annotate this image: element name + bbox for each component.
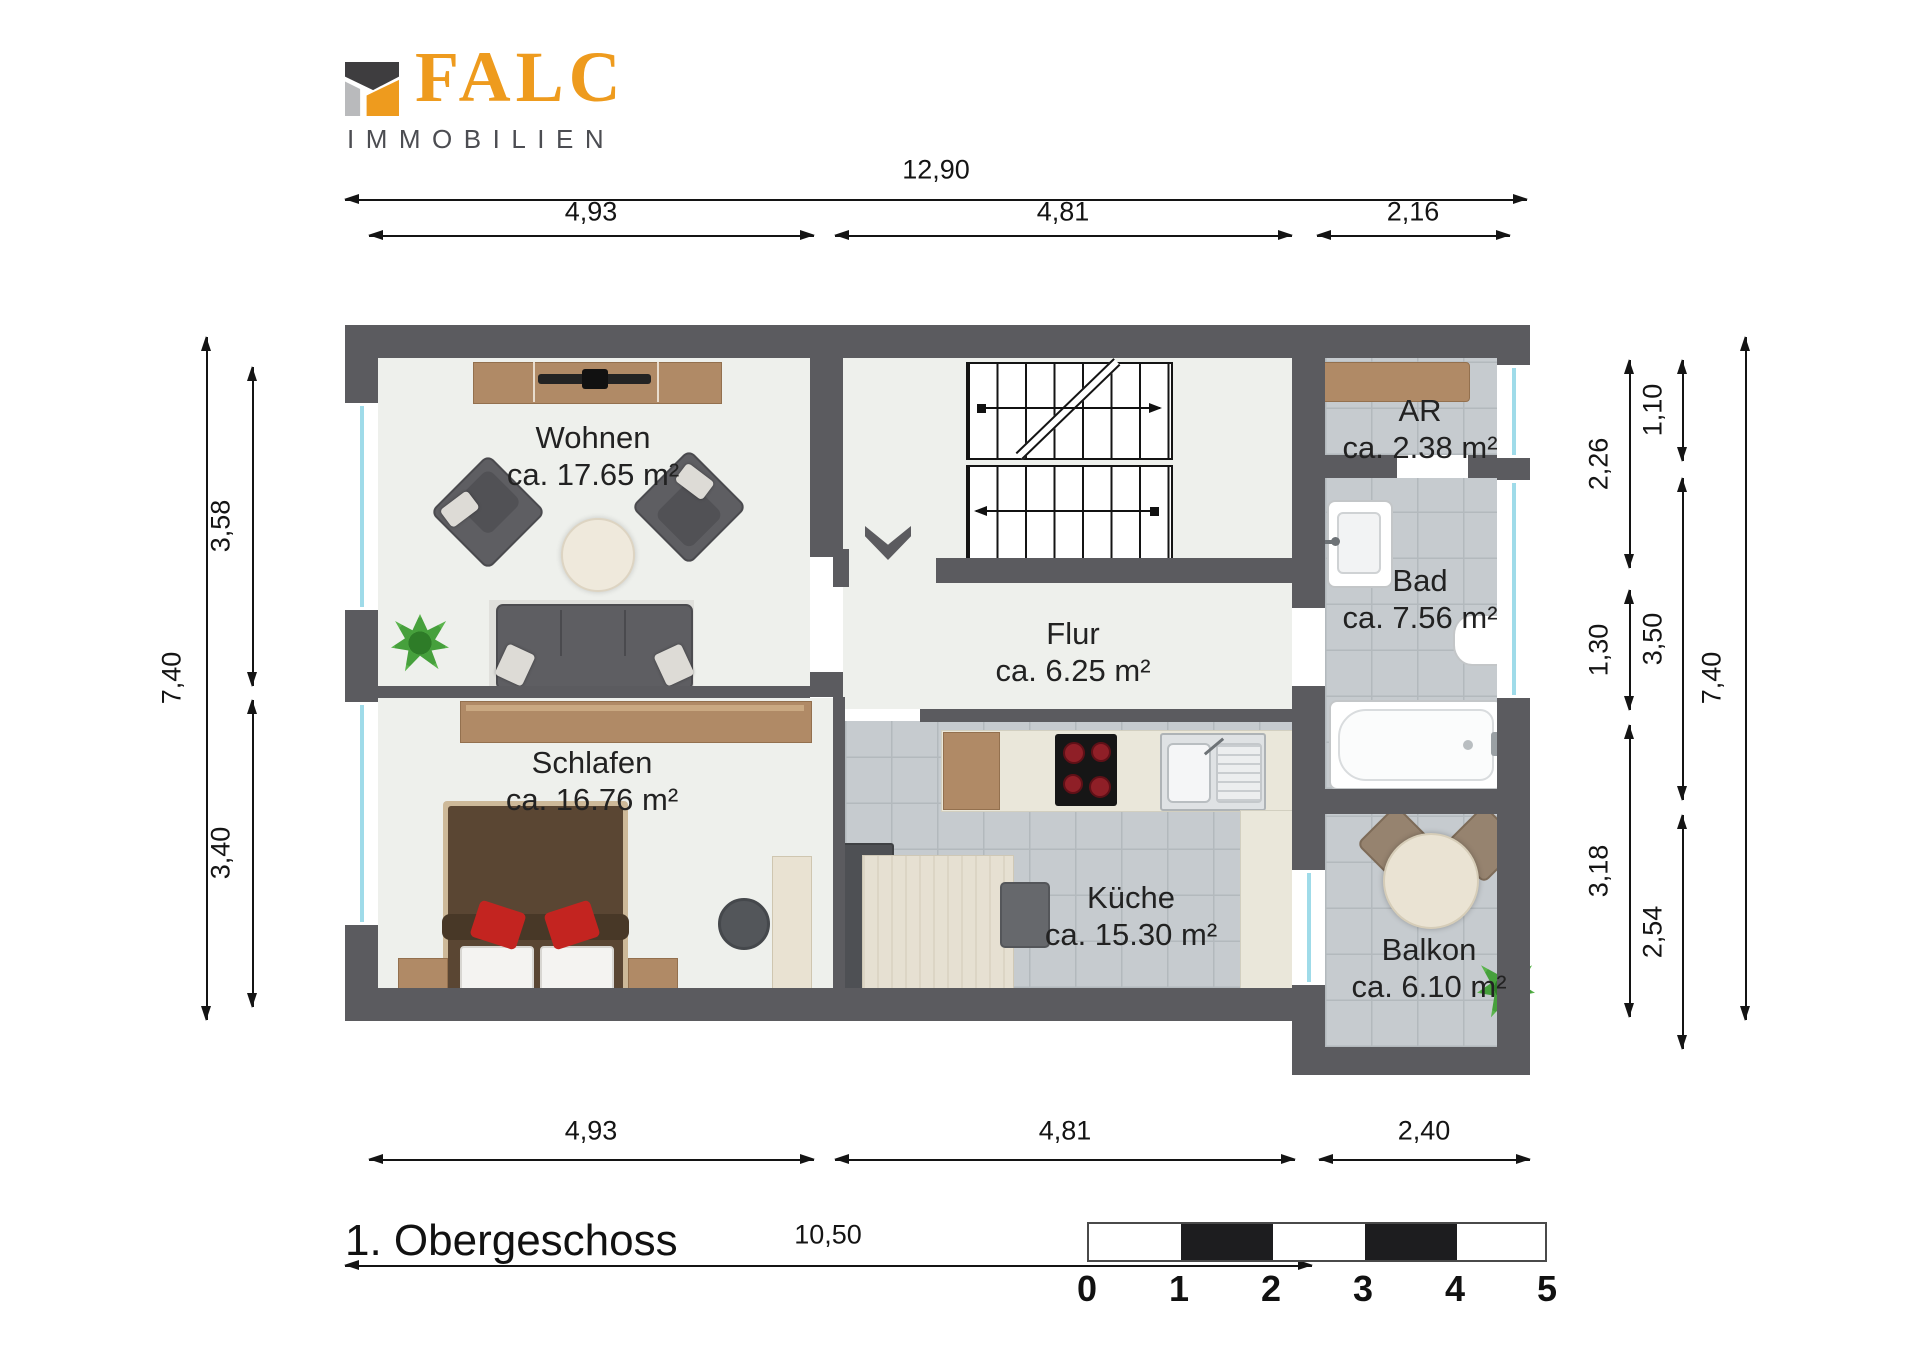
burner — [1089, 776, 1111, 798]
window-wohnen — [345, 403, 378, 610]
room-area: ca. 6.10 m² — [1351, 968, 1506, 1005]
dim-arrow — [252, 367, 254, 686]
sofa-seam — [624, 610, 626, 656]
bed-cushion-red — [469, 900, 526, 951]
wall-outer-right — [1497, 458, 1530, 480]
room-area: ca. 7.56 m² — [1342, 599, 1497, 636]
dim-arrow — [1317, 235, 1510, 237]
dim-arrow — [1319, 1159, 1530, 1161]
brand-logo-icon — [345, 62, 399, 116]
brand-name: FALC — [415, 36, 626, 119]
dim-arrow — [1682, 360, 1684, 461]
wall-door-stub — [833, 549, 849, 587]
room-area: ca. 16.76 m² — [506, 781, 678, 818]
sofa-seam — [560, 610, 562, 656]
dim-label: 2,26 — [1584, 438, 1615, 491]
room-label-schlafen: Schlafen ca. 16.76 m² — [506, 744, 678, 818]
floor-title: 1. Obergeschoss — [345, 1216, 678, 1266]
wall-hall-bad — [1292, 686, 1325, 806]
scale-tick: 3 — [1353, 1268, 1373, 1310]
scale-tick: 2 — [1261, 1268, 1281, 1310]
scale-tick: 4 — [1445, 1268, 1465, 1310]
window-ar — [1497, 365, 1530, 458]
wall-under-stairs — [936, 558, 1292, 583]
kitchen-counter-side — [1240, 810, 1294, 1000]
wall-balkon-railing — [1292, 1047, 1530, 1075]
dim-label: 4,81 — [1037, 197, 1090, 228]
scale-tick: 1 — [1169, 1268, 1189, 1310]
sideboard-divider — [533, 362, 535, 402]
dim-arrow — [835, 1159, 1295, 1161]
wall-flur-kueche — [920, 709, 1292, 722]
bathtub — [1329, 700, 1503, 790]
tv-center — [582, 369, 608, 389]
burner — [1063, 742, 1085, 764]
dim-label-top-total: 12,90 — [902, 155, 970, 186]
cutting-board — [943, 732, 1000, 810]
stool-mirror — [718, 898, 770, 950]
wall-divider-stub — [810, 672, 843, 697]
room-name: Balkon — [1351, 931, 1506, 968]
wall-outer-right — [1497, 698, 1530, 1075]
dim-label: 2,54 — [1638, 906, 1669, 959]
scale-segment — [1181, 1224, 1273, 1260]
room-label-kueche: Küche ca. 15.30 m² — [1045, 879, 1217, 953]
dim-label: 3,18 — [1584, 845, 1615, 898]
dim-label: 3,58 — [206, 500, 237, 553]
stair-direction-arrow-up — [978, 407, 1160, 409]
sideboard-divider — [657, 362, 659, 402]
brand-subtitle: IMMOBILIEN — [347, 124, 615, 155]
bed-duvet-fold — [442, 914, 629, 940]
wall-balkon-left — [1292, 985, 1325, 1047]
dim-label: 4,93 — [565, 1116, 618, 1147]
dim-arrow — [1629, 725, 1631, 1017]
dim-label-bottom-total: 10,50 — [794, 1220, 862, 1251]
dim-arrow-right-total — [1745, 337, 1747, 1020]
wall-balkon-left — [1292, 806, 1325, 870]
stair-direction-arrow-down — [976, 510, 1158, 512]
cooktop-icon — [1055, 734, 1117, 806]
bathtub-drain — [1463, 740, 1473, 750]
wall-wohnen-hall — [810, 325, 843, 557]
dim-arrow — [1682, 815, 1684, 1049]
wall-outer-left — [345, 925, 378, 1021]
room-label-wohnen: Wohnen ca. 17.65 m² — [507, 419, 679, 493]
dim-label: 1,30 — [1584, 624, 1615, 677]
room-label-flur: Flur ca. 6.25 m² — [995, 615, 1150, 689]
wall-hall-bad — [1292, 325, 1325, 608]
burner — [1091, 742, 1111, 762]
room-name: AR — [1342, 392, 1497, 429]
window-bad — [1497, 480, 1530, 698]
wall-outer-right — [1497, 325, 1530, 365]
sink-drainer — [1216, 743, 1262, 803]
burner — [1063, 774, 1083, 794]
dim-label-left-total: 7,40 — [157, 652, 188, 705]
window-schlafen — [345, 702, 378, 925]
dim-arrow — [369, 1159, 814, 1161]
room-area: ca. 2.38 m² — [1342, 429, 1497, 466]
room-area: ca. 15.30 m² — [1045, 916, 1217, 953]
dim-label: 1,10 — [1638, 384, 1669, 437]
stair-flight-lower — [966, 465, 1173, 562]
wall-outer-top — [345, 325, 1530, 358]
dim-arrow — [1629, 590, 1631, 710]
bed-pillow — [540, 946, 614, 992]
room-area: ca. 17.65 m² — [507, 456, 679, 493]
dim-arrow — [252, 700, 254, 1007]
room-label-ar: AR ca. 2.38 m² — [1342, 392, 1497, 466]
room-name: Flur — [995, 615, 1150, 652]
wall-schlafen-kueche — [833, 697, 845, 988]
room-name: Schlafen — [506, 744, 678, 781]
sofa-pillow — [653, 643, 695, 686]
bed-pillow — [460, 946, 534, 992]
room-label-balkon: Balkon ca. 6.10 m² — [1351, 931, 1506, 1005]
balcony-table — [1383, 833, 1479, 929]
dim-label: 4,81 — [1039, 1116, 1092, 1147]
wall-outer-left — [345, 325, 378, 403]
kitchen-sink — [1160, 733, 1266, 811]
bed-cushion-red — [543, 900, 600, 951]
dim-label: 2,40 — [1398, 1116, 1451, 1147]
room-area: ca. 6.25 m² — [995, 652, 1150, 689]
bed — [448, 806, 623, 993]
dim-label: 4,93 — [565, 197, 618, 228]
wall-outer-bottom — [345, 988, 1325, 1021]
wall-wohnen-schlafen — [378, 686, 810, 698]
coffee-table — [561, 518, 635, 592]
sofa — [496, 604, 693, 690]
dim-arrow-top-total — [345, 199, 1527, 201]
door-leaf — [772, 856, 812, 991]
dim-arrow-left-total — [206, 337, 208, 1020]
scale-segment — [1365, 1224, 1457, 1260]
dim-arrow — [835, 235, 1292, 237]
dim-label: 3,40 — [206, 827, 237, 880]
dim-label: 2,16 — [1387, 197, 1440, 228]
dim-label: 3,50 — [1638, 613, 1669, 666]
wall-bad-balkon — [1292, 789, 1530, 814]
dim-label-right-total: 7,40 — [1697, 652, 1728, 705]
room-name: Bad — [1342, 562, 1497, 599]
scale-bar — [1087, 1222, 1547, 1262]
dim-arrow — [1682, 478, 1684, 800]
room-name: Küche — [1045, 879, 1217, 916]
balcony-door — [1292, 870, 1325, 985]
dim-arrow — [369, 235, 814, 237]
scale-tick: 0 — [1077, 1268, 1097, 1310]
faucet-dot — [1331, 537, 1340, 546]
room-name: Wohnen — [507, 419, 679, 456]
floorplan-page: FALC IMMOBILIEN — [0, 0, 1920, 1357]
sofa-pillow — [494, 643, 536, 686]
room-label-bad: Bad ca. 7.56 m² — [1342, 562, 1497, 636]
wardrobe-highlight — [466, 705, 804, 711]
brand-logo: FALC IMMOBILIEN — [345, 44, 645, 154]
scale-tick: 5 — [1537, 1268, 1557, 1310]
dim-arrow — [1629, 360, 1631, 568]
wall-outer-left — [345, 610, 378, 702]
kitchen-chair — [1000, 882, 1050, 948]
kitchen-table — [862, 855, 1014, 992]
